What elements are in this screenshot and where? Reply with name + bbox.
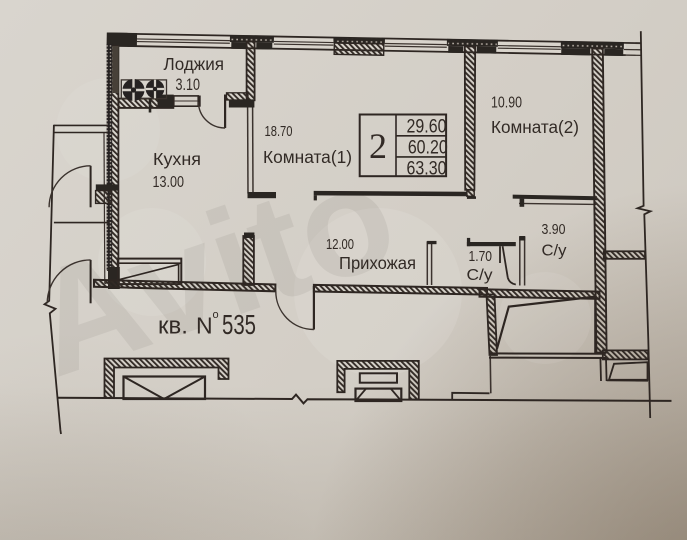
svg-text:Комната(1): Комната(1) (263, 147, 352, 167)
svg-text:29.60: 29.60 (407, 115, 447, 137)
svg-text:60.20: 60.20 (408, 136, 448, 158)
svg-text:535: 535 (222, 309, 256, 340)
svg-text:12.00: 12.00 (326, 236, 354, 253)
svg-text:63.30: 63.30 (407, 157, 447, 179)
svg-text:1.70: 1.70 (469, 248, 493, 265)
svg-text:Прихожая: Прихожая (339, 253, 416, 273)
svg-text:13.00: 13.00 (153, 174, 185, 191)
svg-text:10.90: 10.90 (491, 95, 522, 112)
svg-text:3.10: 3.10 (176, 76, 201, 94)
svg-text:С/у: С/у (542, 243, 567, 260)
svg-text:С/у: С/у (467, 267, 493, 284)
svg-text:3.90: 3.90 (542, 222, 566, 238)
svg-text:Лоджия: Лоджия (164, 54, 225, 74)
svg-text:N: N (196, 313, 213, 339)
svg-text:кв.: кв. (158, 313, 188, 340)
svg-text:o: o (213, 309, 219, 321)
svg-text:2: 2 (369, 126, 387, 166)
svg-text:Кухня: Кухня (153, 149, 201, 169)
svg-text:18.70: 18.70 (265, 123, 293, 140)
svg-text:Комната(2): Комната(2) (491, 117, 579, 137)
